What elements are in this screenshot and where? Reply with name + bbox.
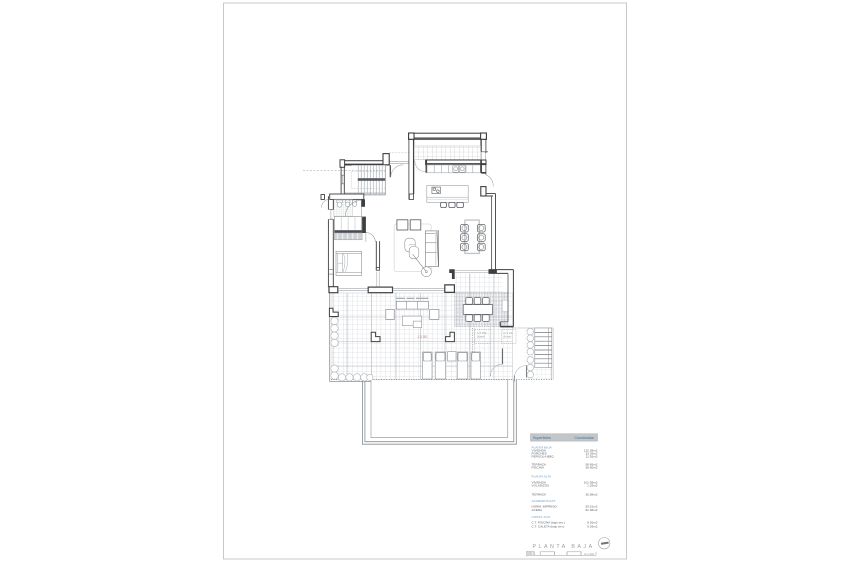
svg-text:PERGOLA BBQ: PERGOLA BBQ <box>532 455 555 459</box>
svg-text:61.38m2: 61.38m2 <box>585 508 597 512</box>
svg-text:C.T. CA: C.T. CA <box>504 331 513 335</box>
svg-text:Superficies: Superficies <box>533 436 551 440</box>
svg-text:13.50: 13.50 <box>417 334 428 339</box>
svg-text:11.92m2: 11.92m2 <box>586 455 598 459</box>
svg-text:(b.terr): (b.terr) <box>477 334 485 338</box>
svg-text:ACABADOS EXT.: ACABADOS EXT. <box>532 499 557 503</box>
svg-text:PISCINA: PISCINA <box>532 465 545 469</box>
svg-text:C.T. CALETA (bajo terr.): C.T. CALETA (bajo terr.) <box>532 524 565 528</box>
svg-text:E 1/100: E 1/100 <box>585 552 595 556</box>
svg-text:ACERA: ACERA <box>532 508 544 512</box>
svg-text:38.60m2: 38.60m2 <box>585 465 597 469</box>
svg-text:PLANTA BAJA: PLANTA BAJA <box>533 544 595 550</box>
svg-text:1.29m2: 1.29m2 <box>587 484 598 488</box>
svg-text:TERRAZA: TERRAZA <box>532 493 547 497</box>
svg-text:(b.terr): (b.terr) <box>504 334 512 338</box>
svg-text:VOLADIZOS: VOLADIZOS <box>532 484 550 488</box>
svg-text:PLANTA ALTA: PLANTA ALTA <box>532 475 553 479</box>
svg-text:Construidas: Construidas <box>575 436 594 440</box>
svg-text:CONST. AUX.: CONST. AUX. <box>532 515 551 519</box>
svg-text:36.58m2: 36.58m2 <box>585 493 597 497</box>
svg-text:C.T. PIS: C.T. PIS <box>477 331 487 335</box>
svg-text:9.29m2: 9.29m2 <box>587 524 598 528</box>
